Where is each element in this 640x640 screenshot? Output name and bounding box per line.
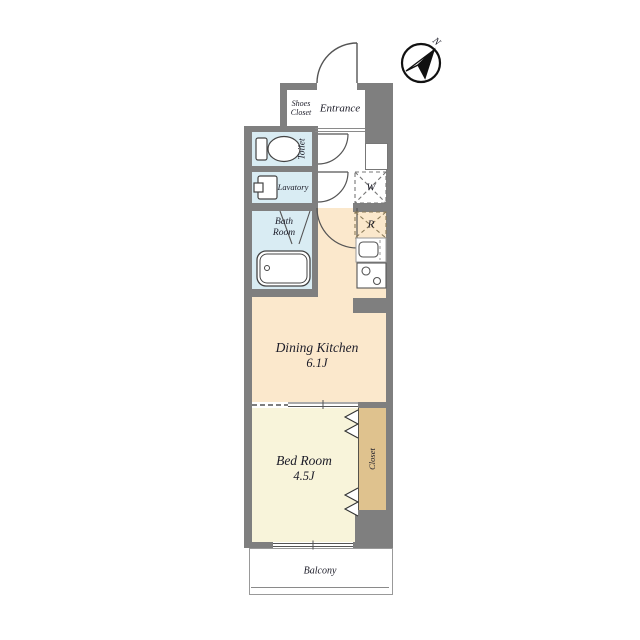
balcony-window [273, 541, 353, 550]
stove-icon [357, 263, 386, 288]
compass-icon [402, 44, 440, 82]
closet-folding-door-icon [345, 410, 358, 516]
refrigerator-place-label: R [368, 219, 375, 232]
kitchen-sink-icon [356, 238, 386, 262]
entrance-door-arc [317, 43, 357, 83]
dining-kitchen-door-arc [317, 208, 357, 248]
bed-room-label: Bed Room 4.5J [276, 453, 332, 483]
bath-room-label: Bath Room [273, 217, 295, 239]
entrance-label: Entrance [320, 103, 360, 116]
lavatory-door-arc [318, 172, 348, 202]
dining-kitchen-label: Dining Kitchen 6.1J [276, 340, 359, 370]
toilet-label: Toilet [298, 138, 309, 159]
washer-place-label: W [366, 182, 375, 195]
dk-bedroom-sliding-door [252, 400, 358, 409]
floor-plan: Shoes Closet Entrance Toilet Lavatory Ba… [0, 0, 640, 640]
bathtub-icon [257, 251, 310, 286]
lavatory-label: Lavatory [278, 183, 309, 193]
balcony-label: Balcony [304, 565, 337, 577]
lavatory-sink-icon [254, 176, 277, 199]
shoes-closet-label: Shoes Closet [291, 99, 311, 117]
toilet-door-arc [318, 134, 348, 164]
closet-label: Closet [368, 448, 378, 470]
toilet-icon [256, 137, 300, 162]
